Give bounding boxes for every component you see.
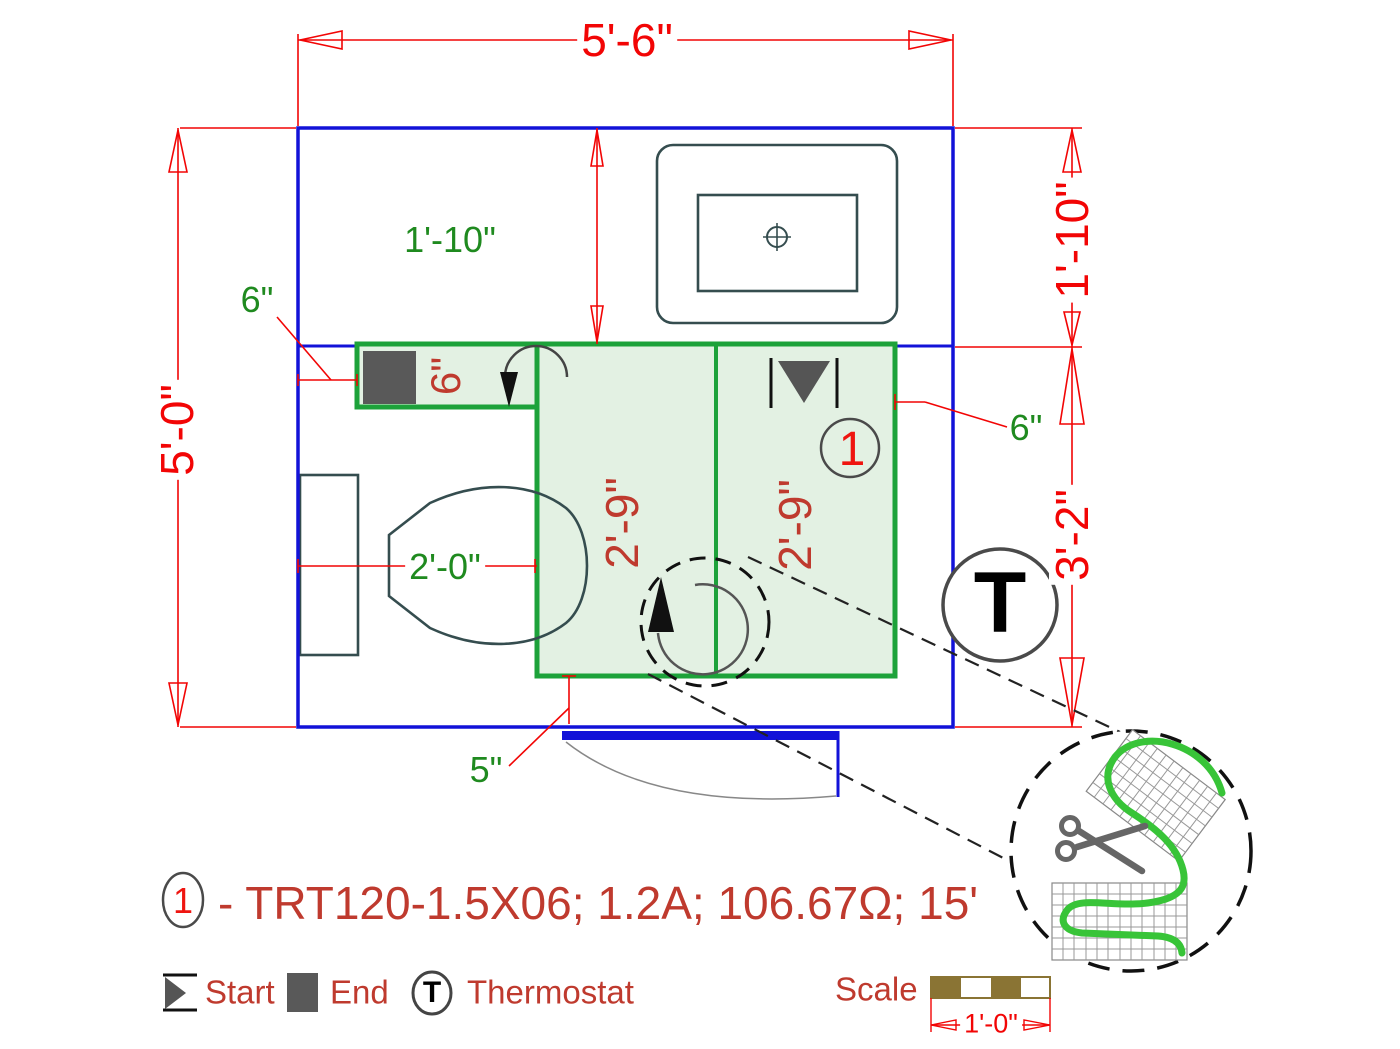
legend-circuit-spec: - TRT120-1.5X06; 1.2A; 106.67Ω; 15': [218, 880, 978, 926]
dim-mat-column-right: 2'-9": [772, 479, 818, 571]
dim-nook-depth-right: 1'-10": [1049, 177, 1095, 302]
mat-mesh-flat: [1052, 883, 1187, 960]
detail-callout: [1011, 730, 1251, 971]
legend-start-label: Start: [205, 976, 275, 1009]
legend-end-label: End: [330, 976, 389, 1009]
legend-start-triangle-icon: [165, 977, 186, 1009]
floor-plan-canvas: 5'-6" 5'-0" 1'-10" 3'-2" 1'-10" 6" 6" 2'…: [0, 0, 1400, 1049]
circuit-marker-number: 1: [839, 426, 866, 474]
detail-leader-lower: [648, 674, 1011, 862]
legend-thermostat-label: Thermostat: [467, 976, 634, 1009]
door-leaf: [562, 731, 838, 740]
dim-strip-width: 6": [425, 357, 467, 395]
thermostat-symbol: T: [974, 560, 1027, 646]
legend-thermostat-symbol: T: [423, 978, 441, 1008]
dim-bottom-gap: 5": [470, 752, 503, 788]
door-swing-arc: [566, 742, 836, 799]
dim-toilet-clearance: 2'-0": [405, 549, 485, 585]
leader-gap-left: [277, 317, 331, 380]
end-symbol: [363, 351, 416, 404]
dim-wall-gap-left: 6": [241, 282, 274, 318]
legend-scale-label: Scale: [835, 973, 918, 1006]
scale-bar-length: 1'-0": [960, 1011, 1022, 1038]
toilet-tank: [300, 475, 358, 655]
dim-wall-gap-right: 6": [1010, 410, 1043, 446]
legend-end-square-icon: [287, 973, 318, 1012]
dim-nook-depth-inner: 1'-10": [404, 222, 496, 258]
dim-room-width: 5'-6": [577, 17, 677, 63]
legend-circuit-number: 1: [173, 883, 193, 919]
dim-mat-zone-height: 3'-2": [1049, 485, 1095, 585]
dim-mat-column-left: 2'-9": [599, 477, 645, 569]
dim-room-height: 5'-0": [154, 380, 200, 480]
